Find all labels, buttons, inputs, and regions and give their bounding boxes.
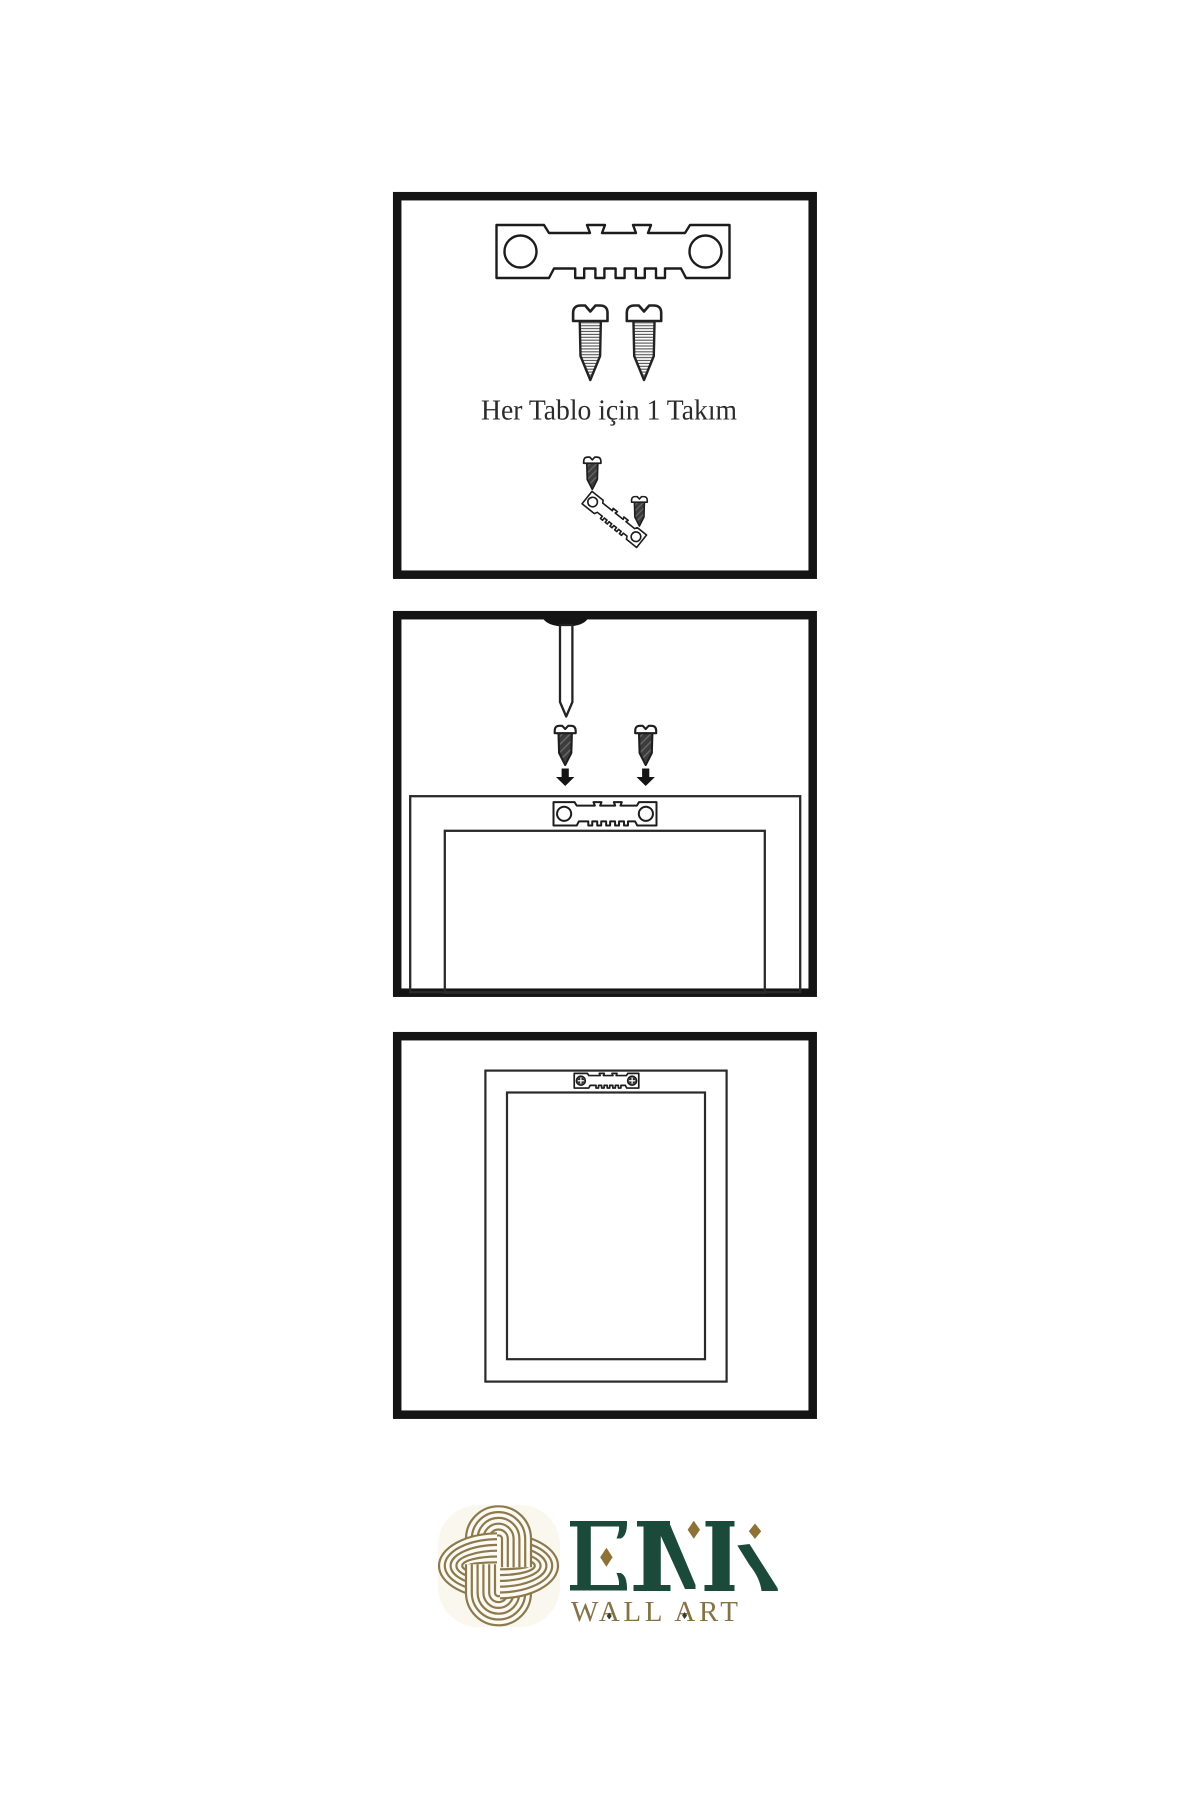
svg-text:Her Tablo için 1 Takım: Her Tablo için 1 Takım — [481, 395, 737, 427]
